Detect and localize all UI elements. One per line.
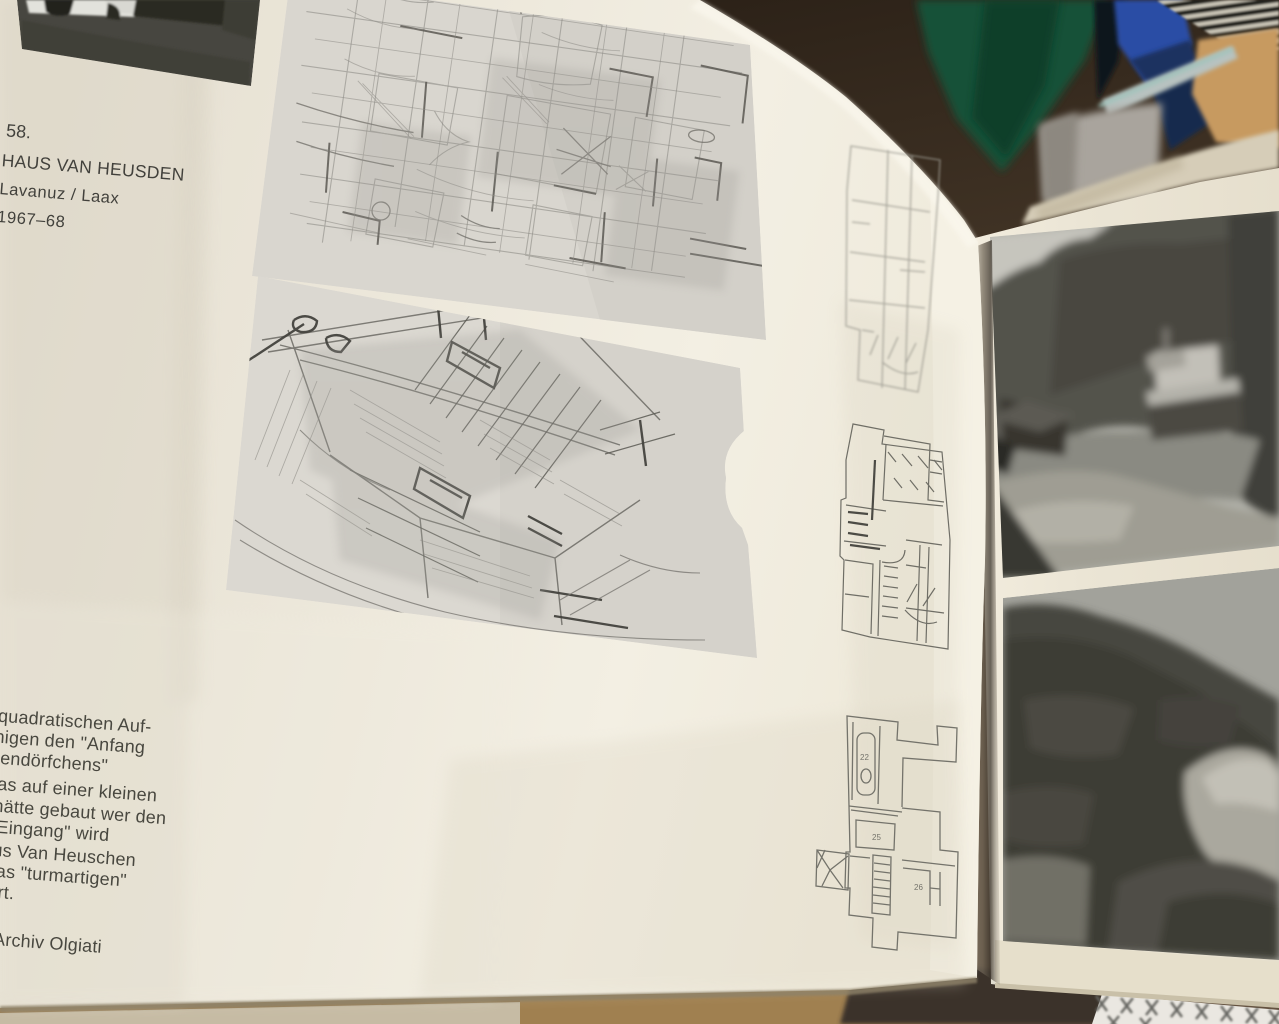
svg-text:iert.: iert. (0, 881, 15, 903)
svg-text:22: 22 (860, 753, 869, 762)
svg-text:25: 25 (872, 833, 881, 842)
svg-text:26: 26 (914, 883, 923, 892)
svg-text:58.: 58. (5, 120, 32, 142)
